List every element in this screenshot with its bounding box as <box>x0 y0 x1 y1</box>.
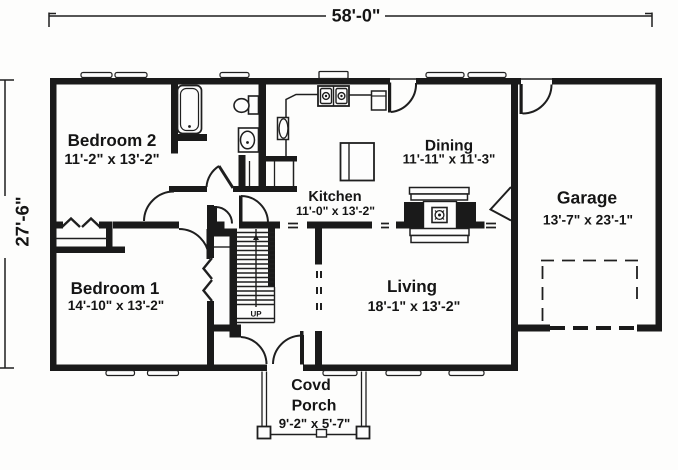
svg-text:Kitchen: Kitchen <box>308 189 361 205</box>
svg-text:14'-10" x 13'-2": 14'-10" x 13'-2" <box>68 298 164 313</box>
svg-text:13'-7" x 23'-1": 13'-7" x 23'-1" <box>543 213 633 228</box>
svg-text:Porch: Porch <box>292 398 337 415</box>
svg-text:UP: UP <box>250 310 262 319</box>
svg-text:Covd: Covd <box>291 377 331 394</box>
svg-text:18'-1" x 13'-2": 18'-1" x 13'-2" <box>368 299 461 315</box>
svg-text:11'-0" x 13'-2": 11'-0" x 13'-2" <box>296 204 375 218</box>
svg-text:Living: Living <box>387 277 437 296</box>
svg-text:Garage: Garage <box>557 188 618 208</box>
svg-text:27'-6": 27'-6" <box>12 196 33 246</box>
svg-text:Bedroom 1: Bedroom 1 <box>71 279 160 298</box>
svg-text:11'-2" x 13'-2": 11'-2" x 13'-2" <box>64 152 159 168</box>
svg-text:58'-0": 58'-0" <box>332 6 381 26</box>
svg-text:9'-2" x 5'-7": 9'-2" x 5'-7" <box>279 416 351 431</box>
svg-text:11'-11" x 11'-3": 11'-11" x 11'-3" <box>403 152 496 167</box>
svg-text:Bedroom 2: Bedroom 2 <box>68 131 157 150</box>
